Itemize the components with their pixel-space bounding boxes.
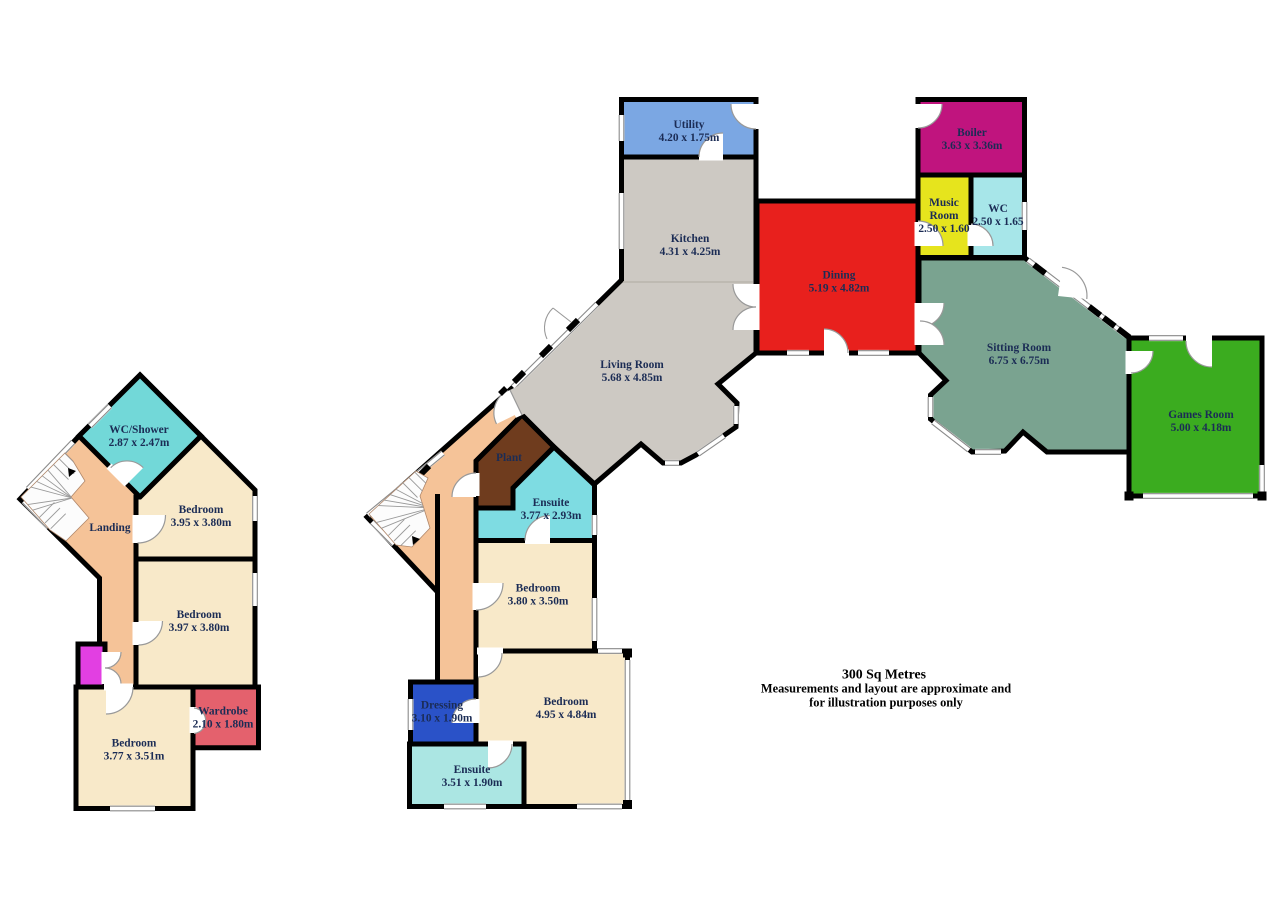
svg-text:Bedroom3.97 x 3.80m: Bedroom3.97 x 3.80m [169,609,230,634]
svg-text:Bedroom3.77 x 3.51m: Bedroom3.77 x 3.51m [104,738,165,763]
svg-text:Bedroom4.95 x 4.84m: Bedroom4.95 x 4.84m [536,696,597,721]
svg-text:Living Room5.68 x 4.85m: Living Room5.68 x 4.85m [600,359,664,384]
svg-text:WC/Shower2.87 x 2.47m: WC/Shower2.87 x 2.47m [109,424,170,449]
svg-text:Sitting Room6.75 x 6.75m: Sitting Room6.75 x 6.75m [987,342,1052,367]
svg-text:Bedroom3.80 x 3.50m: Bedroom3.80 x 3.50m [508,583,569,608]
svg-text:Bedroom3.95 x 3.80m: Bedroom3.95 x 3.80m [171,504,232,529]
svg-text:Plant: Plant [496,452,522,464]
svg-text:Games Room5.00 x 4.18m: Games Room5.00 x 4.18m [1168,409,1234,434]
svg-text:Wardrobe2.10 x 1.80m: Wardrobe2.10 x 1.80m [193,706,254,731]
svg-text:Measurements and layout are ap: Measurements and layout are approximate … [761,682,1011,710]
svg-text:Landing: Landing [89,522,130,534]
svg-text:300 Sq Metres: 300 Sq Metres [842,667,927,682]
